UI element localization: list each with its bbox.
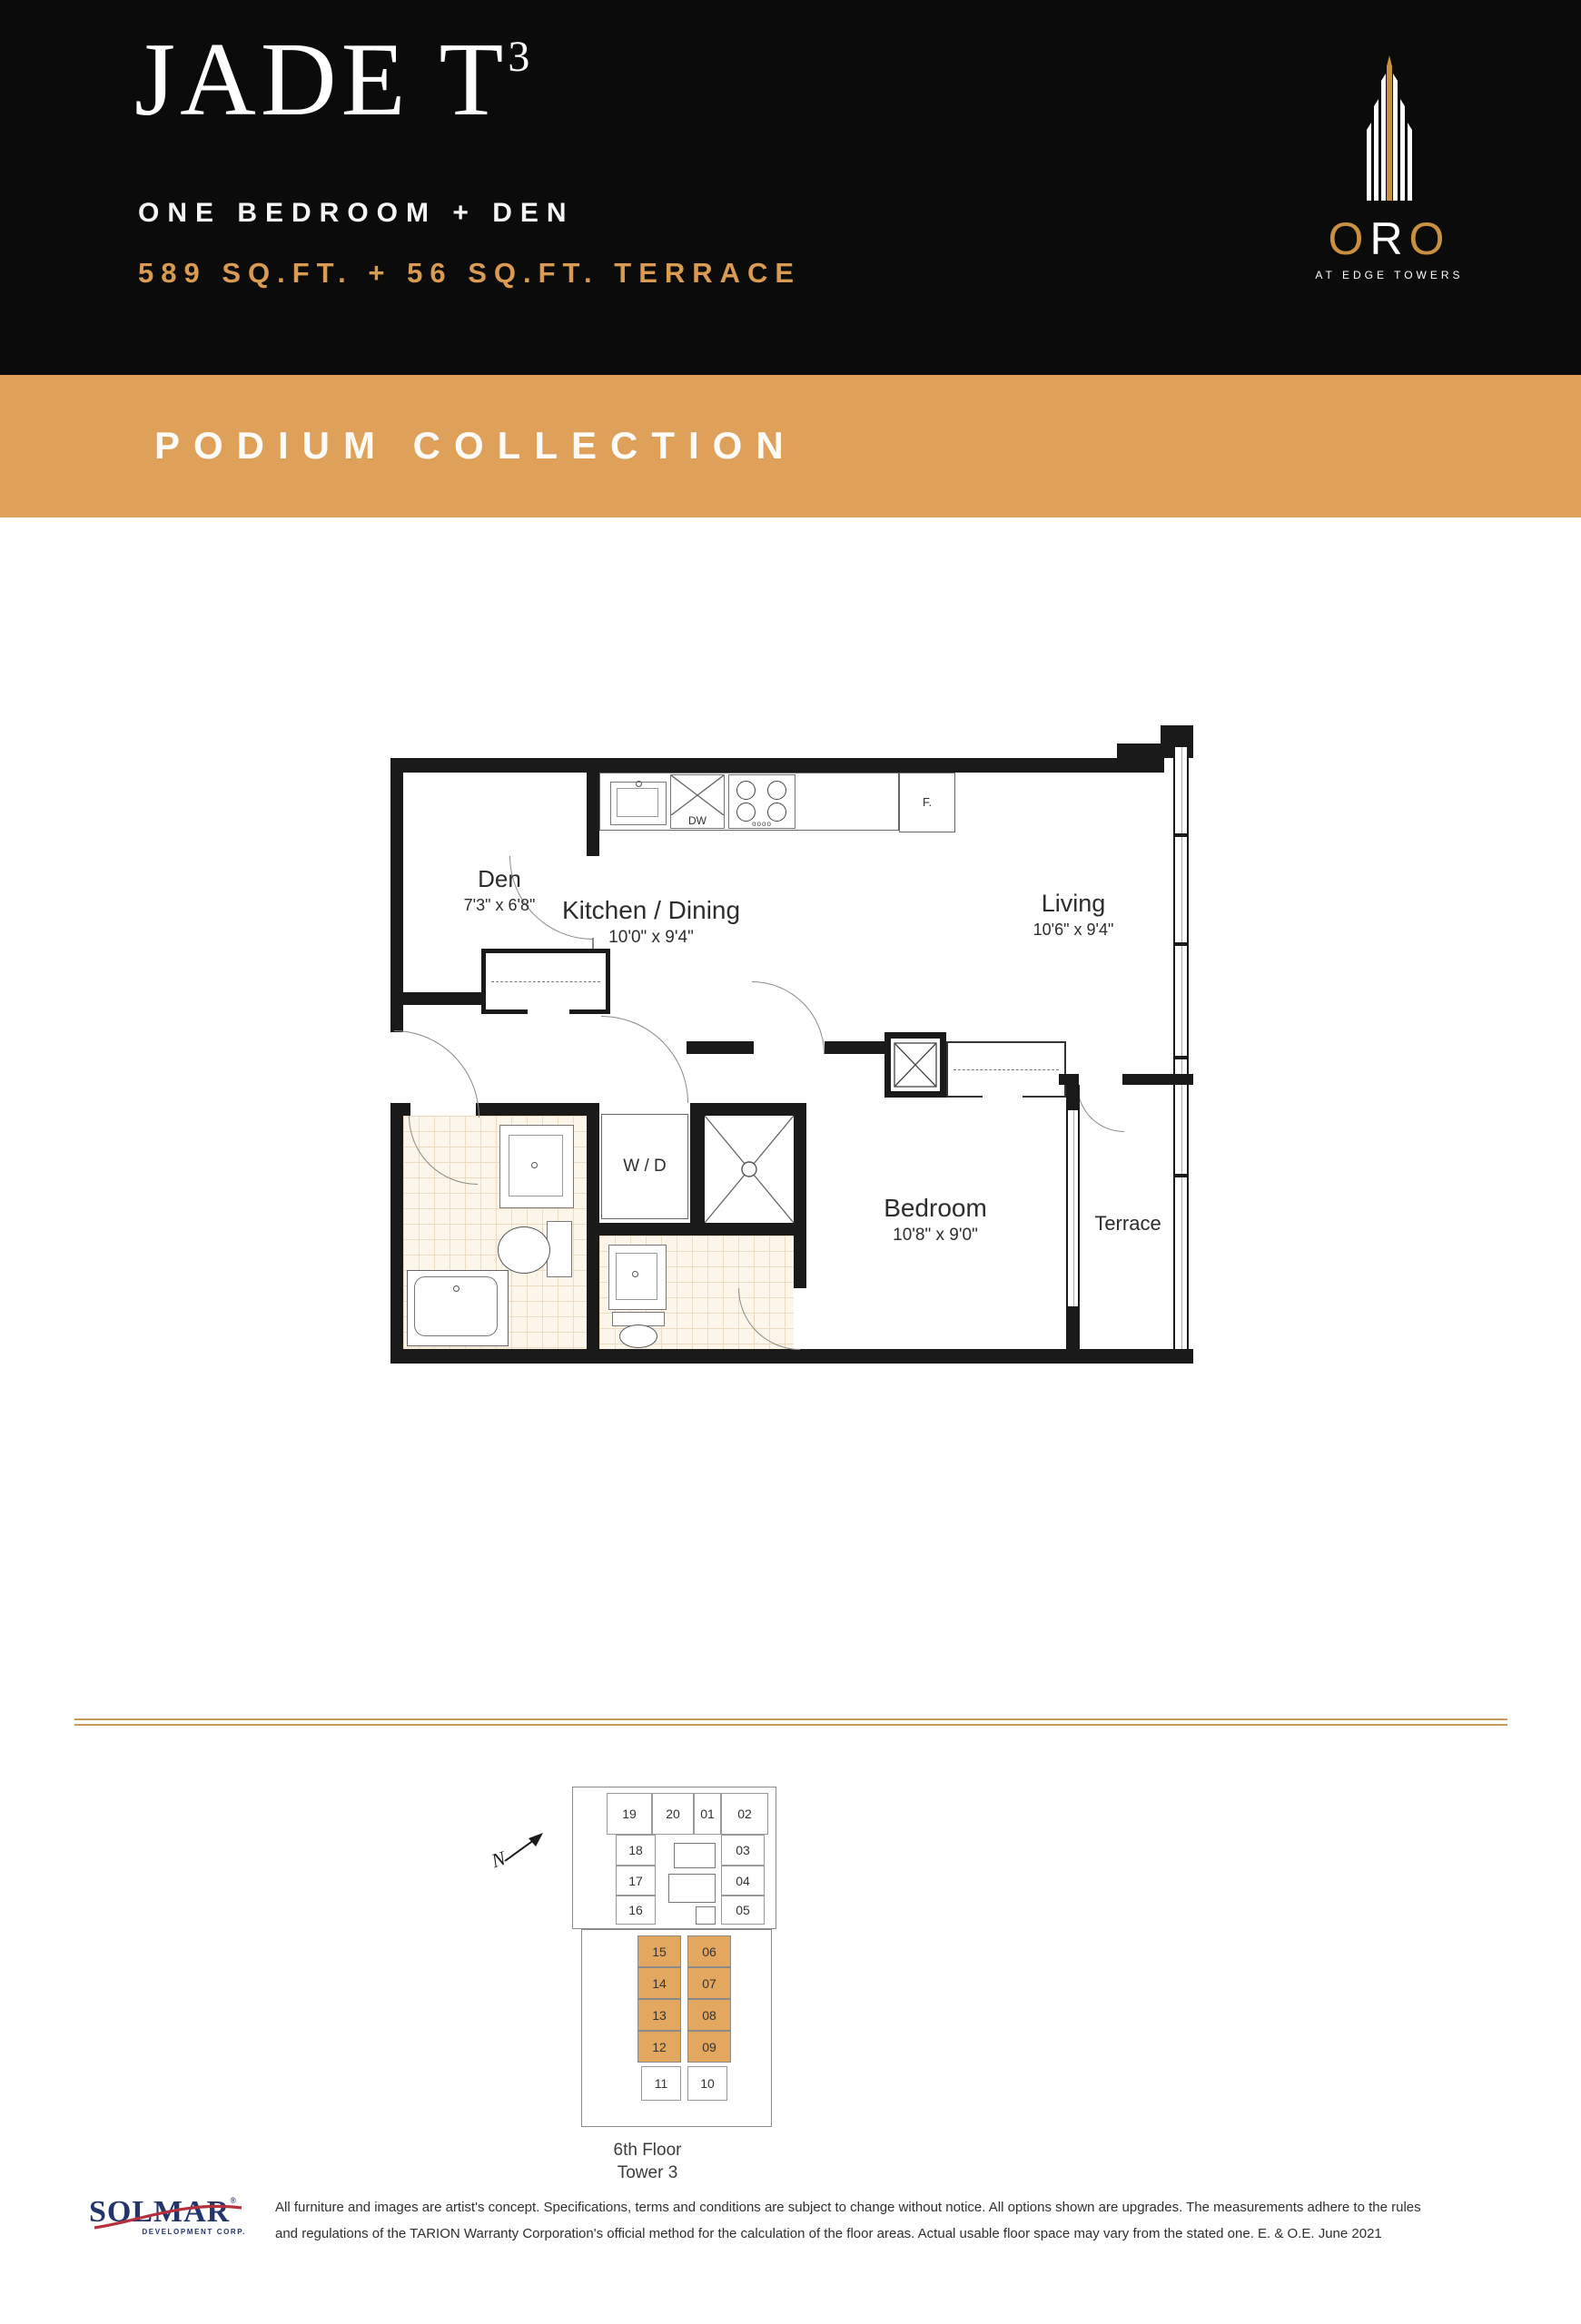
wall bbox=[705, 1103, 794, 1116]
oro-wordmark: ORO bbox=[1315, 212, 1464, 265]
building-core bbox=[674, 1843, 716, 1868]
wall bbox=[1122, 1074, 1193, 1085]
bathtub bbox=[407, 1270, 509, 1346]
bedroom-closet bbox=[946, 1041, 1066, 1098]
keyplan-unit-10: 10 bbox=[687, 2066, 727, 2101]
terrace-door-arc bbox=[1077, 1085, 1124, 1132]
collection-banner: PODIUM COLLECTION bbox=[0, 375, 1581, 517]
shower bbox=[705, 1116, 794, 1223]
wall bbox=[390, 1349, 1193, 1364]
keyplan-unit-04: 04 bbox=[721, 1866, 765, 1896]
disclaimer-line-2: and regulations of the TARION Warranty C… bbox=[275, 2221, 1546, 2247]
keyplan-unit-07: 07 bbox=[687, 1967, 731, 1999]
mechanical-shaft bbox=[884, 1032, 946, 1098]
wall bbox=[1059, 1074, 1079, 1085]
wall bbox=[1066, 1085, 1080, 1110]
washer-dryer: W / D bbox=[601, 1114, 688, 1219]
vanity-sink-2 bbox=[608, 1245, 667, 1310]
disclaimer: All furniture and images are artist's co… bbox=[275, 2194, 1546, 2247]
divider-line bbox=[74, 1724, 1507, 1726]
wall bbox=[390, 1116, 403, 1364]
kitchen-sink bbox=[610, 782, 667, 825]
wall bbox=[476, 1103, 587, 1116]
solmar-subtext: DEVELOPMENT CORP. bbox=[142, 2228, 246, 2236]
den-closet bbox=[481, 949, 610, 1014]
wall bbox=[794, 1236, 806, 1288]
page: { "header": { "title": "JADE T", "title_… bbox=[0, 0, 1581, 2324]
solmar-logo: SOLMAR® DEVELOPMENT CORP. bbox=[89, 2195, 248, 2237]
keyplan-unit-08: 08 bbox=[687, 1999, 731, 2031]
room-label-kitchen: Kitchen / Dining 10'0" x 9'4" bbox=[562, 896, 740, 948]
wd-door-arc bbox=[601, 1016, 688, 1103]
building-core bbox=[668, 1874, 716, 1903]
window-wall bbox=[1173, 747, 1189, 1349]
header: JADE T3 ONE BEDROOM + DEN 589 SQ.FT. + 5… bbox=[0, 0, 1581, 375]
wall bbox=[687, 1041, 754, 1054]
wall bbox=[1066, 1306, 1080, 1349]
page-title: JADE T3 bbox=[134, 20, 529, 141]
keyplan-unit-11: 11 bbox=[641, 2066, 681, 2101]
area-line: 589 SQ.FT. + 56 SQ.FT. TERRACE bbox=[138, 257, 801, 290]
keyplan-unit-13: 13 bbox=[637, 1999, 681, 2031]
unit-type-subtitle: ONE BEDROOM + DEN bbox=[138, 198, 575, 229]
keyplan-unit-12: 12 bbox=[637, 2031, 681, 2063]
dishwasher-label: DW bbox=[671, 814, 724, 827]
stove: oooo bbox=[728, 774, 795, 829]
room-label-den: Den 7'3" x 6'8" bbox=[464, 865, 536, 915]
fridge: F. bbox=[899, 773, 955, 832]
north-arrow-icon: N bbox=[490, 1827, 554, 1870]
wall bbox=[825, 1041, 888, 1054]
wall bbox=[690, 1103, 705, 1236]
wall bbox=[390, 758, 403, 1032]
oro-logo: ORO AT EDGE TOWERS bbox=[1315, 50, 1464, 281]
disclaimer-line-1: All furniture and images are artist's co… bbox=[275, 2194, 1546, 2221]
wall bbox=[794, 1103, 806, 1236]
wall bbox=[390, 992, 483, 1005]
keyplan-unit-05: 05 bbox=[721, 1896, 765, 1925]
keyplan-unit-02: 02 bbox=[721, 1793, 768, 1835]
title-superscript: 3 bbox=[508, 33, 529, 81]
vanity-sink bbox=[499, 1125, 574, 1208]
fridge-label: F. bbox=[900, 795, 954, 809]
svg-text:N: N bbox=[490, 1846, 509, 1870]
collection-banner-label: PODIUM COLLECTION bbox=[154, 424, 797, 468]
oro-tagline: AT EDGE TOWERS bbox=[1315, 269, 1464, 281]
room-label-terrace: Terrace bbox=[1094, 1212, 1161, 1236]
keyplan-unit-01: 01 bbox=[694, 1793, 721, 1835]
keyplan-unit-14: 14 bbox=[637, 1967, 681, 1999]
building-core bbox=[696, 1906, 716, 1925]
bedroom-door-arc bbox=[752, 981, 825, 1054]
keyplan-unit-16: 16 bbox=[616, 1896, 656, 1925]
room-label-living: Living 10'6" x 9'4" bbox=[1033, 890, 1114, 940]
keyplan-unit-19: 19 bbox=[607, 1793, 652, 1835]
keyplan-unit-20: 20 bbox=[652, 1793, 694, 1835]
wall bbox=[587, 1223, 599, 1349]
keyplan-unit-17: 17 bbox=[616, 1866, 656, 1896]
entry-door-arc bbox=[394, 1030, 479, 1118]
wall bbox=[390, 758, 1122, 773]
washer-dryer-label: W / D bbox=[602, 1157, 687, 1177]
wall bbox=[587, 1223, 806, 1236]
keyplan-unit-15: 15 bbox=[637, 1935, 681, 1967]
wall bbox=[587, 1103, 599, 1236]
keyplan-unit-18: 18 bbox=[616, 1835, 656, 1866]
tower-icon bbox=[1360, 50, 1418, 201]
room-label-bedroom: Bedroom 10'8" x 9'0" bbox=[884, 1194, 987, 1246]
keyplan-caption: 6th Floor Tower 3 bbox=[557, 2139, 738, 2184]
keyplan-unit-09: 09 bbox=[687, 2031, 731, 2063]
divider-line bbox=[74, 1718, 1507, 1720]
wall bbox=[587, 773, 599, 856]
dishwasher: DW bbox=[670, 774, 725, 829]
keyplan-unit-06: 06 bbox=[687, 1935, 731, 1967]
floor-plan: DW oooo F. bbox=[390, 722, 1212, 1412]
keyplan-unit-03: 03 bbox=[721, 1835, 765, 1866]
wall bbox=[1117, 743, 1164, 773]
